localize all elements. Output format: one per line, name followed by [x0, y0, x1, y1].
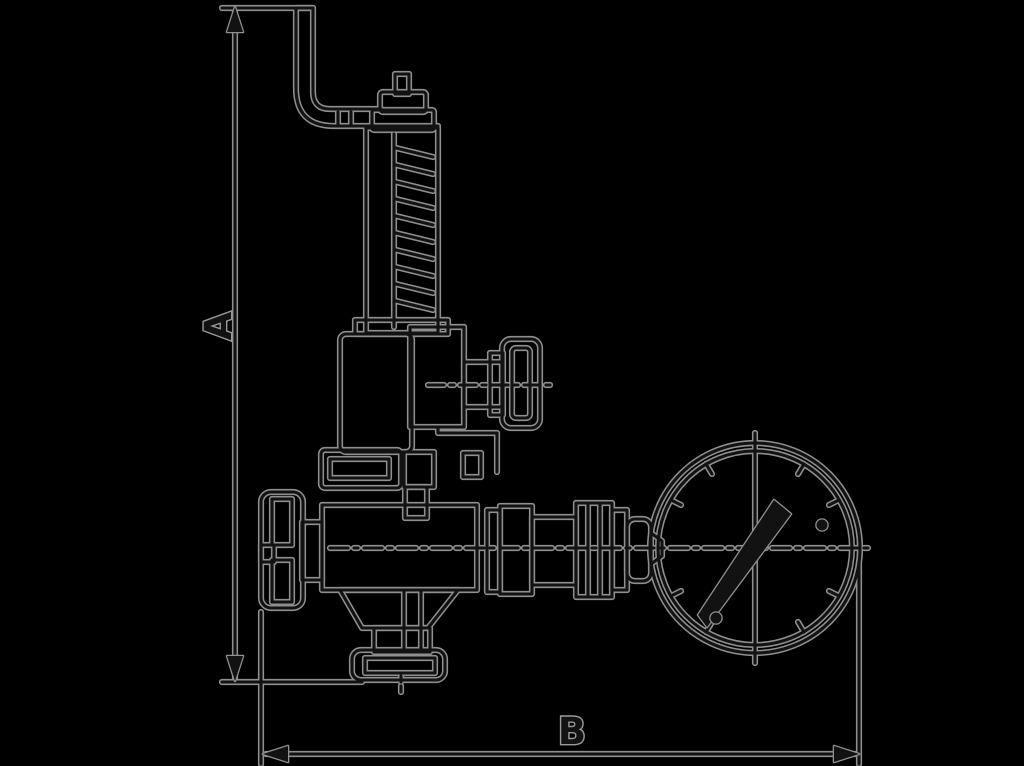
gauge-needle: [698, 500, 791, 627]
gauge-screw-right: [817, 520, 828, 531]
arrowhead-a-bottom: [227, 656, 243, 681]
gauge-screw-left: [711, 613, 722, 624]
valve-dimension-drawing: A B: [0, 0, 1024, 766]
dimension-b-label: B: [558, 710, 586, 753]
dimension-a-label: A: [197, 311, 240, 340]
arrowhead-b-right: [834, 746, 859, 762]
arrowhead-b-left: [263, 746, 288, 762]
drawing-canvas: A B: [0, 0, 1024, 766]
